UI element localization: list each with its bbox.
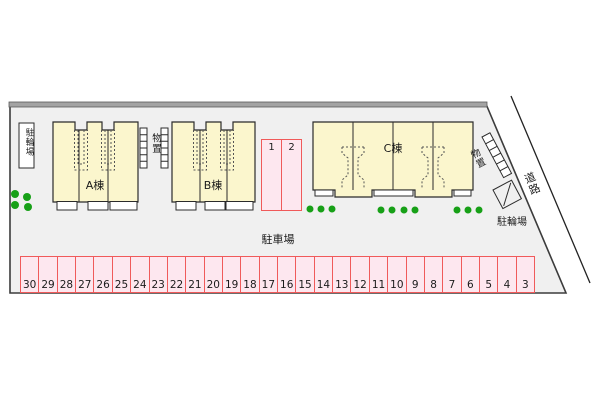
parking-space-number: 12 bbox=[353, 280, 366, 293]
parking-space: 9 bbox=[407, 257, 425, 292]
parking-space-number: 24 bbox=[133, 280, 146, 293]
shrub-icon bbox=[465, 207, 472, 214]
building-a-label: A棟 bbox=[74, 180, 116, 192]
parking-space: 30 bbox=[21, 257, 39, 292]
building-a-entrance-porches bbox=[57, 202, 137, 211]
parking-space: 29 bbox=[39, 257, 57, 292]
shrub-icon bbox=[476, 207, 483, 214]
shrub-icon bbox=[412, 207, 419, 214]
parking-space: 14 bbox=[315, 257, 333, 292]
shrub-icon bbox=[401, 207, 408, 214]
parking-space-number: 16 bbox=[280, 280, 293, 293]
parking-space-number: 11 bbox=[372, 280, 385, 293]
parking-space: 20 bbox=[205, 257, 223, 292]
parking-space: 19 bbox=[223, 257, 241, 292]
parking-space: 13 bbox=[333, 257, 351, 292]
site-plan: 駐輪場 物置 A棟 B棟 C棟 物置 道路 駐輪場 駐車場 12 3029282… bbox=[0, 0, 600, 400]
parking-space-number: 9 bbox=[412, 280, 419, 293]
parking-space-number: 3 bbox=[522, 280, 529, 293]
parking-space-number: 29 bbox=[41, 280, 54, 293]
parking-space-number: 8 bbox=[430, 280, 437, 293]
parking-space-number: 27 bbox=[78, 280, 91, 293]
front-parking-box: 12 bbox=[261, 139, 302, 211]
parking-space-front: 2 bbox=[282, 140, 301, 210]
parking-space-number: 2 bbox=[288, 140, 294, 153]
north-boundary-band bbox=[9, 102, 487, 107]
parking-space-number: 19 bbox=[225, 280, 238, 293]
shrub-icon bbox=[307, 206, 314, 213]
shrub-icon bbox=[24, 203, 32, 211]
parking-space: 4 bbox=[498, 257, 516, 292]
car-parking-label: 駐車場 bbox=[250, 234, 306, 246]
parking-space: 28 bbox=[58, 257, 76, 292]
parking-space-number: 6 bbox=[467, 280, 474, 293]
parking-space: 25 bbox=[113, 257, 131, 292]
parking-space-number: 17 bbox=[262, 280, 275, 293]
parking-space-number: 18 bbox=[243, 280, 256, 293]
shrub-icon bbox=[11, 201, 19, 209]
parking-space: 24 bbox=[131, 257, 149, 292]
parking-space-number: 23 bbox=[152, 280, 165, 293]
bicycle-parking-left-label: 駐輪場 bbox=[21, 128, 33, 166]
shrub-icon bbox=[378, 207, 385, 214]
building-c-label: C棟 bbox=[372, 143, 414, 155]
parking-space: 8 bbox=[425, 257, 443, 292]
parking-space-number: 1 bbox=[268, 140, 274, 153]
bicycle-parking-right-label: 駐輪場 bbox=[485, 217, 539, 228]
parking-space: 21 bbox=[186, 257, 204, 292]
parking-space-number: 21 bbox=[188, 280, 201, 293]
parking-space: 16 bbox=[278, 257, 296, 292]
parking-space-number: 28 bbox=[60, 280, 73, 293]
parking-space-number: 26 bbox=[96, 280, 109, 293]
parking-space: 11 bbox=[370, 257, 388, 292]
shrub-icon bbox=[389, 207, 396, 214]
parking-space: 27 bbox=[76, 257, 94, 292]
shrub-icon bbox=[329, 206, 336, 213]
parking-space: 10 bbox=[388, 257, 406, 292]
parking-space-number: 7 bbox=[449, 280, 456, 293]
parking-space: 12 bbox=[351, 257, 369, 292]
parking-space: 15 bbox=[296, 257, 314, 292]
parking-space: 5 bbox=[480, 257, 498, 292]
shrub-icon bbox=[11, 190, 19, 198]
parking-space: 3 bbox=[517, 257, 534, 292]
shrub-icon bbox=[454, 207, 461, 214]
parking-space-number: 30 bbox=[23, 280, 36, 293]
parking-space-number: 20 bbox=[207, 280, 220, 293]
parking-space-number: 13 bbox=[335, 280, 348, 293]
parking-space: 22 bbox=[168, 257, 186, 292]
storage-mid-label: 物置 bbox=[149, 133, 160, 159]
shrub-icon bbox=[318, 206, 325, 213]
parking-space-number: 10 bbox=[390, 280, 403, 293]
parking-space: 17 bbox=[260, 257, 278, 292]
parking-space-number: 5 bbox=[485, 280, 492, 293]
parking-space-number: 22 bbox=[170, 280, 183, 293]
parking-space: 6 bbox=[462, 257, 480, 292]
parking-space: 7 bbox=[443, 257, 461, 292]
parking-space: 26 bbox=[94, 257, 112, 292]
parking-space: 18 bbox=[241, 257, 259, 292]
building-b-label: B棟 bbox=[192, 180, 234, 192]
parking-space: 23 bbox=[150, 257, 168, 292]
parking-space-number: 15 bbox=[298, 280, 311, 293]
parking-space-number: 4 bbox=[504, 280, 511, 293]
shrub-icon bbox=[23, 193, 31, 201]
parking-space-front: 1 bbox=[262, 140, 282, 210]
building-b-entrance-porches bbox=[176, 202, 253, 211]
parking-space-number: 14 bbox=[317, 280, 330, 293]
parking-row: 3029282726252423222120191817161514131211… bbox=[20, 256, 535, 293]
parking-space-number: 25 bbox=[115, 280, 128, 293]
